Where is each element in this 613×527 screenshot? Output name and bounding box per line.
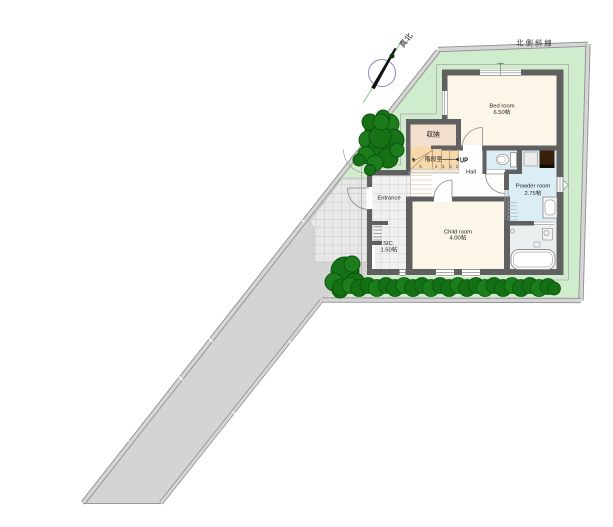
svg-text:2.75帖: 2.75帖 (524, 189, 541, 197)
svg-text:階段室: 階段室 (425, 155, 443, 163)
svg-text:1.50帖: 1.50帖 (380, 246, 397, 254)
svg-text:Hall: Hall (466, 170, 476, 176)
svg-text:UP: UP (460, 157, 468, 164)
svg-text:収納: 収納 (426, 130, 440, 139)
svg-text:Powder room: Powder room (516, 183, 551, 189)
svg-text:6.50帖: 6.50帖 (493, 108, 510, 116)
svg-text:SIC: SIC (383, 241, 393, 247)
svg-text:Bed room: Bed room (489, 104, 514, 110)
svg-text:北側斜線: 北側斜線 (516, 39, 554, 48)
svg-text:4.00帖: 4.00帖 (449, 234, 466, 242)
svg-text:Entrance: Entrance (377, 196, 400, 202)
svg-text:Child room: Child room (444, 229, 472, 235)
